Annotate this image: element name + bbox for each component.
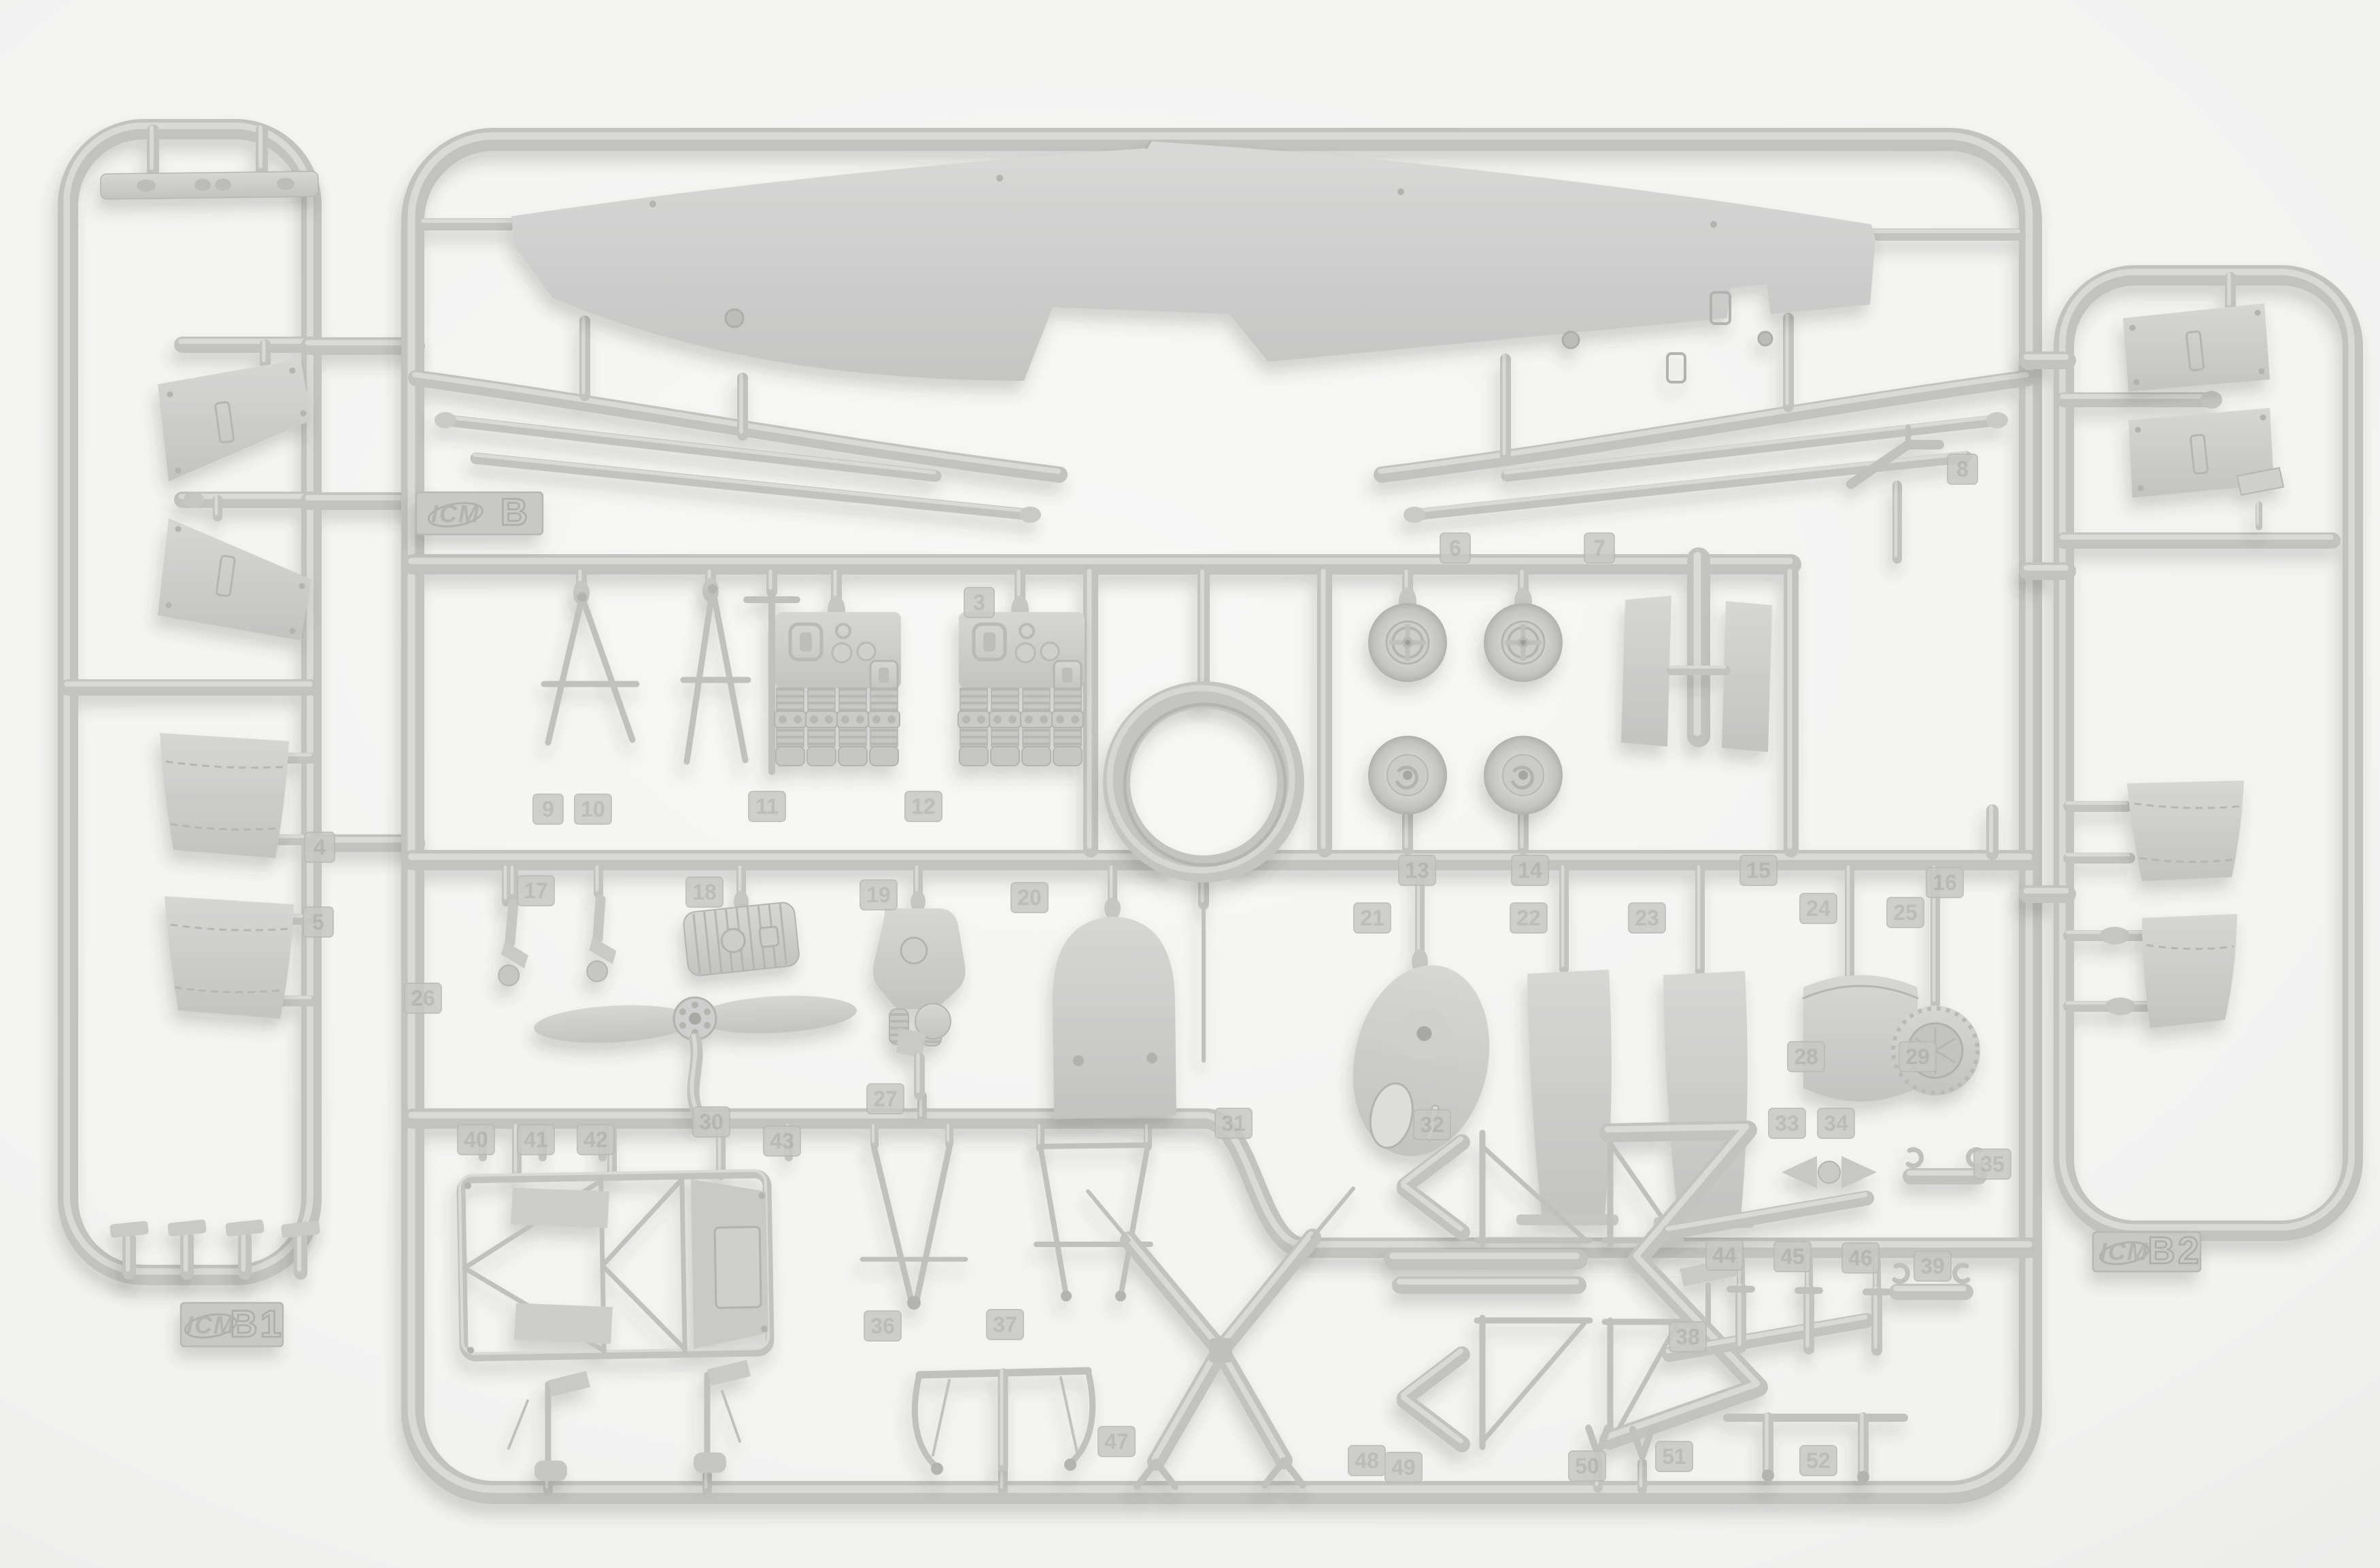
part-number-tag: 23	[1629, 903, 1665, 933]
main-wheel-spoked-left	[1369, 604, 1446, 681]
svg-text:24: 24	[1806, 896, 1831, 921]
part-number-tag: 12	[905, 791, 942, 821]
svg-text:14: 14	[1518, 858, 1542, 883]
svg-text:29: 29	[1905, 1044, 1930, 1069]
svg-text:44: 44	[1712, 1243, 1737, 1267]
svg-text:32: 32	[1420, 1112, 1444, 1137]
part-number-tag: 49	[1385, 1452, 1422, 1482]
icm-logo-right: ICM	[2098, 1238, 2150, 1267]
part-number-tag: 25	[1887, 898, 1924, 927]
part-number-tag: 6	[1440, 533, 1470, 563]
part-number-tag: 41	[517, 1125, 554, 1155]
svg-text:ICM: ICM	[2100, 1238, 2149, 1265]
part-number-tag: 36	[864, 1311, 901, 1341]
svg-text:40: 40	[464, 1127, 488, 1152]
part-number-tag: 15	[1740, 855, 1777, 885]
svg-text:23: 23	[1635, 906, 1659, 930]
svg-text:5: 5	[312, 910, 324, 934]
walkway-strip-part	[101, 171, 318, 199]
part-number-tag: 3	[964, 587, 994, 617]
svg-text:33: 33	[1775, 1111, 1799, 1136]
svg-text:37: 37	[993, 1312, 1017, 1337]
part-number-tag: 19	[860, 880, 897, 910]
part-number-tag: 13	[1399, 855, 1435, 885]
svg-text:6: 6	[1449, 536, 1461, 560]
svg-text:43: 43	[770, 1129, 794, 1153]
corrugated-shell-part	[683, 902, 800, 977]
svg-text:41: 41	[524, 1127, 548, 1152]
svg-text:13: 13	[1405, 858, 1429, 883]
part-number-tag: 27	[867, 1084, 904, 1114]
svg-text:46: 46	[1848, 1246, 1873, 1270]
part-number-tag: 44	[1706, 1240, 1743, 1270]
part-number-tag: 33	[1769, 1108, 1805, 1138]
cowling-side-panel-upper-left	[160, 733, 289, 858]
svg-text:ICM: ICM	[186, 1311, 235, 1339]
rounded-door-panel-part	[1053, 917, 1176, 1119]
svg-text:39: 39	[1920, 1254, 1945, 1278]
part-number-tag: 24	[1800, 893, 1837, 923]
svg-text:48: 48	[1355, 1448, 1379, 1473]
part-number-tag: 38	[1669, 1322, 1706, 1352]
svg-text:51: 51	[1662, 1444, 1686, 1469]
svg-text:45: 45	[1780, 1244, 1805, 1269]
svg-text:7: 7	[1593, 536, 1605, 560]
svg-text:16: 16	[1933, 870, 1957, 895]
cowling-side-panel-lower-left	[165, 896, 294, 1019]
wheel-disc-half-right	[1484, 736, 1562, 814]
svg-text:18: 18	[692, 880, 717, 904]
part-number-tag: 34	[1818, 1108, 1854, 1138]
svg-text:28: 28	[1794, 1044, 1818, 1069]
part-number-tag: 46	[1842, 1243, 1879, 1273]
part-number-tag: 8	[1948, 454, 1977, 484]
part-number-tag: 4	[305, 832, 335, 862]
part-number-tag: 39	[1914, 1251, 1951, 1281]
part-number-tag: 22	[1510, 903, 1547, 933]
part-number-tag: 51	[1656, 1442, 1693, 1471]
svg-text:27: 27	[873, 1087, 898, 1111]
part-number-tag: 14	[1512, 855, 1548, 885]
icm-logo-center: ICM	[427, 499, 484, 530]
part-number-tag: 7	[1584, 533, 1614, 563]
part-number-tag: 32	[1414, 1110, 1450, 1140]
svg-text:35: 35	[1980, 1152, 2005, 1176]
svg-text:B1: B1	[230, 1302, 284, 1345]
part-number-tag: 35	[1974, 1149, 2011, 1179]
part-number-tag: 47	[1098, 1427, 1135, 1456]
part-number-tag: 31	[1215, 1108, 1252, 1138]
svg-text:22: 22	[1516, 906, 1541, 930]
part-number-tag: 26	[405, 983, 441, 1013]
part-number-tag: 20	[1011, 883, 1048, 913]
cowling-side-panel-upper-right	[2127, 781, 2244, 881]
fuselage-side-panel-upper-right	[2123, 303, 2270, 392]
photo-of-sprues: ICM B1	[0, 0, 2380, 1568]
part-number-tag: 50	[1569, 1451, 1605, 1481]
svg-text:30: 30	[699, 1110, 724, 1134]
part-number-tag: 43	[764, 1126, 800, 1156]
svg-text:9: 9	[542, 797, 554, 821]
svg-text:26: 26	[411, 986, 435, 1010]
svg-text:38: 38	[1676, 1325, 1700, 1349]
svg-text:52: 52	[1806, 1448, 1831, 1473]
svg-text:47: 47	[1104, 1429, 1129, 1454]
svg-text:20: 20	[1017, 885, 1042, 910]
part-number-tag: 9	[533, 794, 563, 824]
svg-text:ICM: ICM	[431, 500, 480, 528]
svg-text:12: 12	[911, 794, 936, 819]
svg-text:36: 36	[870, 1314, 895, 1338]
svg-text:4: 4	[313, 835, 326, 859]
part-number-tag: 28	[1788, 1042, 1824, 1072]
part-number-tag: 52	[1800, 1446, 1837, 1476]
svg-text:50: 50	[1575, 1454, 1599, 1478]
part-number-tag: 29	[1899, 1042, 1936, 1072]
svg-text:10: 10	[581, 797, 605, 821]
part-number-tag: 40	[458, 1125, 494, 1155]
part-number-tag: 21	[1354, 903, 1391, 933]
part-number-tag: 11	[749, 791, 785, 821]
part-number-tag: 16	[1926, 868, 1963, 898]
svg-text:49: 49	[1391, 1455, 1416, 1480]
svg-text:31: 31	[1221, 1111, 1246, 1136]
sprue-label-left: ICM B1	[181, 1302, 284, 1346]
svg-text:3: 3	[973, 590, 985, 615]
main-wheel-spoked-right	[1484, 604, 1562, 681]
svg-text:15: 15	[1746, 858, 1771, 883]
part-number-tag: 42	[577, 1125, 614, 1155]
part-number-tag: 10	[575, 794, 611, 824]
wheel-disc-half-left	[1369, 736, 1446, 814]
svg-text:B2: B2	[2147, 1229, 2202, 1272]
part-number-tag: 5	[303, 907, 333, 937]
svg-text:17: 17	[524, 879, 548, 903]
svg-text:8: 8	[1956, 457, 1969, 481]
svg-text:34: 34	[1824, 1111, 1848, 1136]
cowling-side-panel-lower-right	[2142, 914, 2237, 1028]
sprue-photo-canvas: ICM B1	[0, 0, 2380, 1568]
part-number-tag: 45	[1774, 1242, 1811, 1272]
svg-text:B: B	[500, 490, 530, 533]
svg-text:21: 21	[1360, 906, 1384, 930]
part-number-tag: 17	[517, 876, 554, 906]
svg-text:25: 25	[1893, 900, 1918, 925]
svg-text:11: 11	[755, 794, 779, 819]
svg-text:19: 19	[866, 883, 891, 907]
part-number-tag: 18	[686, 877, 723, 907]
svg-text:42: 42	[583, 1127, 608, 1152]
part-number-tag: 30	[693, 1107, 730, 1137]
sprue-label-right: ICM B2	[2093, 1229, 2202, 1272]
part-number-tag: 37	[987, 1310, 1023, 1340]
part-number-tag: 48	[1348, 1446, 1385, 1476]
sprue-label-center: ICM B	[416, 490, 543, 534]
